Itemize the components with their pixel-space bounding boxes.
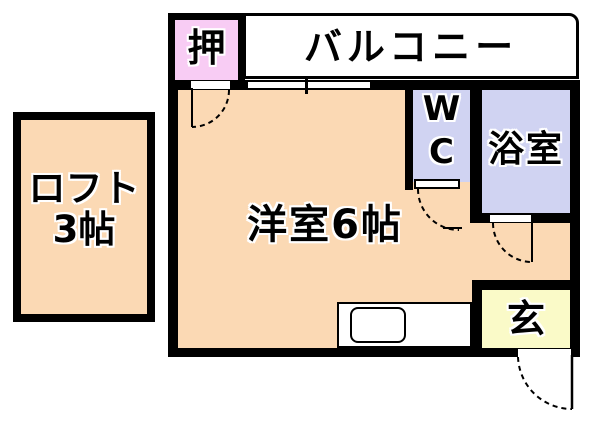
closet-door-opening <box>191 81 230 89</box>
entrance-door-opening <box>518 349 571 357</box>
wall-entrance-left <box>472 280 482 357</box>
entrance-label: 玄 <box>482 298 570 341</box>
wall-entrance-top <box>472 280 580 290</box>
balcony-window-tick <box>305 76 308 94</box>
wc-label-line2: C <box>429 132 454 172</box>
bath-label: 浴室 <box>482 130 570 170</box>
loft-label: ロフト 3帖 <box>13 168 155 251</box>
wc-door-opening <box>414 179 460 189</box>
loft-name: ロフト <box>29 167 140 210</box>
entrance-door-arc <box>518 357 572 409</box>
wc-label-line1: W <box>423 89 461 129</box>
loft-size: 3帖 <box>53 208 116 251</box>
wc-label: W C <box>405 88 478 173</box>
balcony-window <box>248 82 370 88</box>
closet-label: 押 <box>168 27 245 70</box>
bath-door-opening <box>490 215 531 222</box>
kitchen-sink <box>350 307 406 343</box>
floorplan: ロフト 3帖 押 バルコニー 洋室6帖 W C 浴室 玄 <box>0 0 600 432</box>
main-room-label: 洋室6帖 <box>225 203 425 248</box>
balcony-label: バルコニー <box>243 26 579 69</box>
wall-left <box>168 80 178 357</box>
